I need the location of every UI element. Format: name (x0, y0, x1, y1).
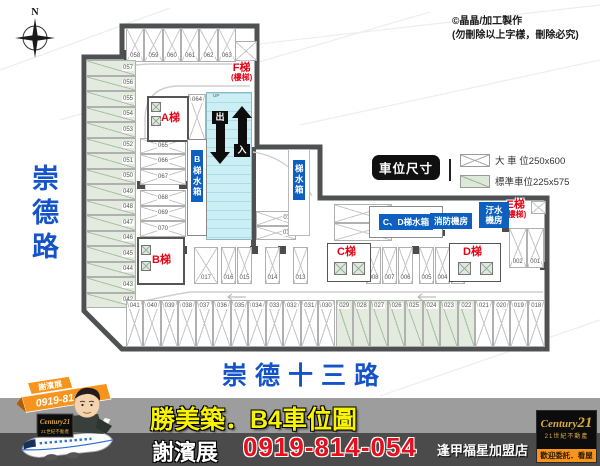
parking-space: 017 (194, 247, 218, 284)
parking-space: 038 (178, 300, 195, 347)
space-number: 059 (147, 53, 159, 59)
space-number: 037 (199, 303, 211, 309)
space-number: 057 (122, 65, 134, 71)
agent-mascot: 謝濱展 0919-814054 Century21 21世紀不動產 (8, 374, 124, 466)
parking-space: 029 (336, 300, 353, 347)
parking-space: 016 (221, 247, 236, 284)
space-number: 061 (184, 53, 196, 59)
parking-space: 051 (86, 153, 136, 169)
stair-d-unit: D梯 (449, 243, 501, 282)
space-number: 016 (222, 275, 234, 281)
parking-space: 031 (301, 300, 318, 347)
parking-space: 015 (237, 247, 252, 284)
space-number: 006 (399, 275, 411, 281)
credit-line1: ©晶晶/加工製作 (452, 15, 594, 29)
space-number: 032 (286, 303, 298, 309)
parking-space: 068 (140, 190, 186, 206)
enter-arrow: 入 (232, 106, 252, 157)
parking-space: 007 (382, 247, 397, 284)
space-number: 062 (202, 53, 214, 59)
century21-logo: Century21 21世紀不動產 歡迎委託．看屋 (536, 410, 597, 463)
space-number: 005 (420, 275, 432, 281)
arrow-up-icon (232, 106, 252, 118)
space-number: 045 (122, 251, 134, 257)
parking-space: 050 (86, 169, 136, 185)
parking-space: 041 (126, 300, 143, 347)
parking-space: 025 (405, 300, 422, 347)
tank-cd-label: C、D梯水箱 (379, 214, 433, 230)
space-number: 043 (122, 282, 134, 288)
space-number: 030 (321, 303, 333, 309)
mascot-head (74, 388, 100, 418)
parking-space: 032 (283, 300, 300, 347)
stair-f-box (235, 41, 257, 61)
parking-space: 056 (86, 76, 136, 92)
legend-label-standard: 標準車位225x575 (495, 174, 569, 188)
parking-map-flyer: N ©晶晶/加工製作 (勿刪除以上字樣，刪除必究) 崇德路 崇德十三路 車位尺寸… (0, 0, 600, 466)
legend-divider (449, 159, 451, 181)
parking-space: 067 (140, 169, 186, 185)
space-number: 056 (122, 80, 134, 86)
space-number: 055 (122, 96, 134, 102)
space-number: 065 (157, 143, 169, 149)
space-number: 025 (408, 303, 420, 309)
space-number: 007 (383, 275, 395, 281)
stair-a-unit: A梯 (147, 96, 189, 142)
space-number: 051 (122, 158, 134, 164)
space-number: 019 (513, 303, 525, 309)
space-number: 027 (373, 303, 385, 309)
parking-space: 054 (86, 107, 136, 123)
stair-e-box (531, 201, 546, 214)
parking-space: 043 (86, 277, 136, 293)
parking-space: 021 (475, 300, 492, 347)
parking-space: 059 (144, 28, 162, 62)
space-number: 067 (157, 174, 169, 180)
credit-line2: (勿刪除以上字樣，刪除必究) (452, 29, 594, 43)
stair-c-label: C梯 (337, 246, 356, 258)
parking-space: 024 (423, 300, 440, 347)
century21-brand: Century21 (541, 416, 593, 431)
space-number: 026 (391, 303, 403, 309)
parking-space: 023 (440, 300, 457, 347)
space-number: 041 (129, 303, 141, 309)
parking-space: 045 (86, 246, 136, 262)
space-number: 028 (356, 303, 368, 309)
parking-space: 014 (265, 247, 280, 284)
space-number: 029 (338, 303, 350, 309)
space-number: 014 (266, 275, 278, 281)
space-number: 058 (129, 53, 141, 59)
stair-c-unit: C梯 (327, 243, 371, 282)
parking-space: 022 (458, 300, 475, 347)
mascot-sign-sub: 21世紀不動產 (41, 428, 69, 435)
space-number: 064 (191, 97, 203, 103)
parking-space: 037 (196, 300, 213, 347)
space-number: 021 (478, 303, 490, 309)
banner-phone: 0919-814-054 (243, 432, 417, 463)
parking-size-legend: 車位尺寸 大 車 位250x600 標準車位225x575 (372, 155, 569, 188)
space-number: 044 (122, 266, 134, 272)
stair-f-label: F梯 (樓梯) (231, 62, 252, 83)
parking-space: 049 (86, 184, 136, 200)
parking-space: 046 (86, 231, 136, 247)
parking-space: 033 (266, 300, 283, 347)
space-number: 047 (122, 220, 134, 226)
space-number: 040 (146, 303, 158, 309)
space-number: 002 (512, 259, 524, 265)
arrow-down-icon (210, 152, 230, 164)
space-number: 013 (294, 275, 306, 281)
space-number: 049 (122, 189, 134, 195)
space-number: 034 (251, 303, 263, 309)
parking-space: 018 (528, 300, 545, 347)
ramp-up-label: UP (213, 94, 220, 99)
tank-mid-room: 梯水箱 (288, 149, 310, 236)
mascot-sign: Century21 21世紀不動產 (37, 414, 73, 437)
parking-space: 001 (527, 228, 545, 268)
space-number: 023 (443, 303, 455, 309)
space-number: 033 (268, 303, 280, 309)
space-number: 060 (166, 53, 178, 59)
enter-arrow-label: 入 (234, 144, 249, 157)
parking-space: 040 (143, 300, 160, 347)
parking-space: 062 (199, 28, 217, 62)
parking-space: 061 (181, 28, 199, 62)
stair-d-label: D梯 (463, 246, 482, 258)
parking-space: 006 (398, 247, 413, 284)
space-number: 031 (303, 303, 315, 309)
compass-rose: N (12, 4, 58, 62)
parking-space: 070 (140, 221, 186, 237)
parking-space: 060 (163, 28, 181, 62)
space-number: 046 (122, 235, 134, 241)
space-number: 052 (122, 142, 134, 148)
tank-b-room: B梯水箱 (187, 139, 207, 236)
parking-space: 052 (86, 138, 136, 154)
banner-title: 勝美築．B4車位圖 (150, 400, 357, 436)
stair-b-unit: B梯 (137, 237, 185, 285)
road-label-bottom: 崇德十三路 (222, 356, 387, 392)
space-number: 068 (157, 195, 169, 201)
parking-space: 044 (86, 262, 136, 278)
banner-store-name: 逢甲福星加盟店 (437, 440, 528, 459)
tank-mid-label: 梯水箱 (293, 160, 306, 200)
legend-swatch-standard (460, 175, 490, 188)
parking-space: 013 (293, 247, 308, 284)
parking-space: 048 (86, 200, 136, 216)
exit-arrow: 出 (210, 111, 230, 164)
parking-space: 047 (86, 215, 136, 231)
legend-swatch-large (460, 154, 490, 167)
space-number: 039 (164, 303, 176, 309)
parking-space: 069 (140, 206, 186, 222)
space-number: 001 (529, 259, 541, 265)
space-number: 035 (233, 303, 245, 309)
parking-space: 063 (218, 28, 236, 62)
space-number: 022 (460, 303, 472, 309)
parking-space: 039 (161, 300, 178, 347)
credit-note: ©晶晶/加工製作 (勿刪除以上字樣，刪除必究) (452, 15, 594, 43)
parking-space: 005 (419, 247, 434, 284)
space-number: 017 (200, 275, 212, 281)
parking-space: 019 (510, 300, 527, 347)
space-number: 015 (238, 275, 250, 281)
legend-label-large: 大 車 位250x600 (495, 153, 565, 167)
space-number: 070 (157, 226, 169, 232)
tank-b-label: B梯水箱 (191, 150, 204, 202)
parking-space: 004 (435, 247, 450, 284)
space-number: 018 (530, 303, 542, 309)
space-number: 024 (425, 303, 437, 309)
parking-space: 066 (140, 154, 186, 170)
parking-space: 036 (213, 300, 230, 347)
century21-tagline: 歡迎委託．看屋 (537, 449, 596, 463)
stair-a-label: A梯 (161, 112, 180, 124)
legend-item-large: 大 車 位250x600 (460, 153, 569, 167)
space-number: 048 (122, 204, 134, 210)
exit-arrow-label: 出 (212, 111, 227, 124)
space-number: 063 (221, 53, 233, 59)
legend-title: 車位尺寸 (372, 155, 440, 180)
mascot-sign-brand: Century21 (40, 418, 70, 426)
parking-space: 057 (86, 60, 136, 76)
parking-space: 030 (318, 300, 335, 347)
space-number: 054 (122, 111, 134, 117)
parking-space: 020 (493, 300, 510, 347)
parking-space: 035 (231, 300, 248, 347)
space-number: 036 (216, 303, 228, 309)
road-label-left: 崇德路 (24, 164, 63, 266)
parking-space: 028 (353, 300, 370, 347)
fire-room-label: 消防機房 (430, 213, 472, 229)
parking-space: 053 (86, 122, 136, 138)
parking-space: 026 (388, 300, 405, 347)
parking-space: 055 (86, 91, 136, 107)
parking-space: 058 (126, 28, 144, 62)
banner-agent-name: 謝濱展 (152, 435, 218, 466)
compass-north-letter: N (31, 7, 39, 18)
space-number: 053 (122, 127, 134, 133)
sewage-room-label: 汙水機房 (479, 202, 509, 228)
century21-sub: 21世紀不動產 (545, 434, 589, 440)
parking-space: 002 (509, 228, 527, 268)
parking-space: 034 (248, 300, 265, 347)
space-number: 069 (157, 210, 169, 216)
space-number: 050 (122, 173, 134, 179)
space-number: 066 (157, 158, 169, 164)
space-number: 020 (495, 303, 507, 309)
parking-space: 027 (370, 300, 387, 347)
space-number: 038 (181, 303, 193, 309)
space-number: 004 (436, 275, 448, 281)
legend-item-standard: 標準車位225x575 (460, 174, 569, 188)
stair-b-label: B梯 (152, 254, 171, 266)
parking-space: 064 (188, 94, 206, 141)
